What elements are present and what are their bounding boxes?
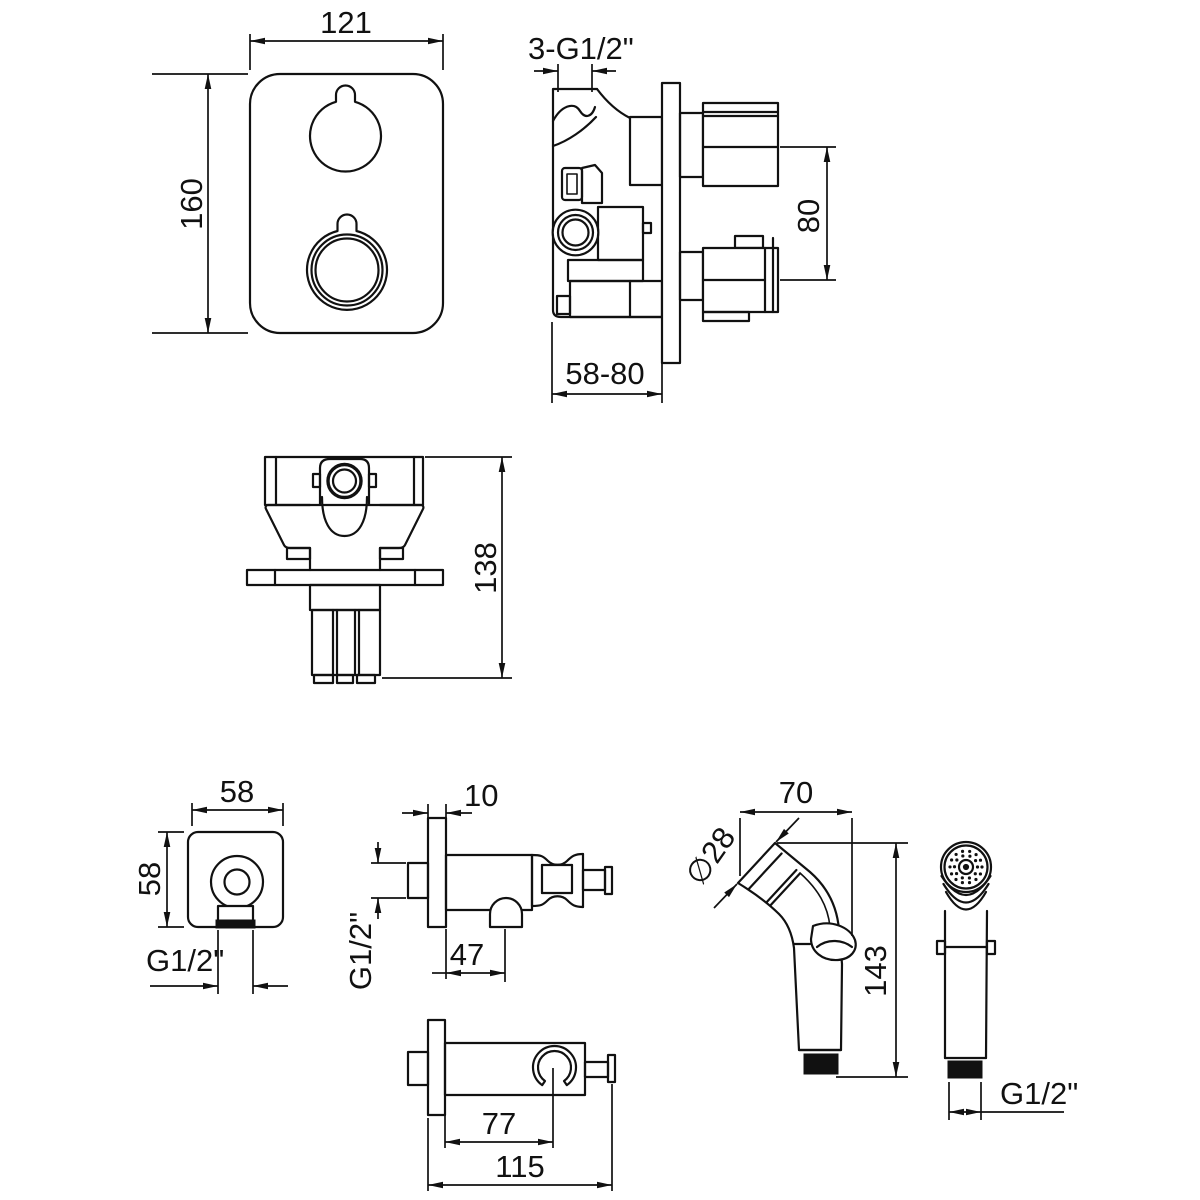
sprayer-thread-front — [948, 1061, 982, 1078]
thermostat-knob — [310, 86, 381, 172]
inlet-stub — [408, 863, 428, 898]
dim-front-plate-width: 121 — [320, 5, 372, 40]
dim-valve-top-height-group: 138 — [382, 457, 512, 678]
dim-sprayer-height: 143 — [858, 945, 893, 997]
dim-valve-top-height: 138 — [468, 542, 503, 594]
cartridge-cap — [553, 210, 599, 256]
dim-sprayer-thread-group: G1/2" — [949, 1076, 1078, 1120]
dim-outlet-front-height-group: 58 — [132, 832, 184, 927]
sprayer-body — [738, 843, 856, 1074]
dim-sprayer-head-diameter: ∅28 — [678, 821, 742, 891]
dim-sprayer-thread: G1/2" — [1000, 1076, 1078, 1111]
dim-front-plate-height-group: 160 — [152, 74, 248, 333]
dim-valve-knob-spacing: 80 — [791, 199, 826, 233]
right-wing — [380, 505, 423, 548]
view-wall-outlet-side: 10 G1/2" 47 — [343, 778, 612, 990]
dim-outlet-offset-group: 47 — [432, 929, 505, 982]
left-wing — [266, 505, 310, 548]
outlet-nozzle — [218, 906, 253, 921]
view-sprayer-side: 70 ∅28 143 — [678, 775, 908, 1077]
dim-outlet-side-thread: G1/2" — [343, 912, 378, 990]
wall-plate-edge — [662, 83, 680, 363]
dim-outlet-front-thread: G1/2" — [146, 943, 224, 978]
volume-knob — [307, 215, 387, 310]
outlet-wall-plate — [428, 818, 446, 927]
holder-pin — [583, 870, 605, 890]
outlet-holder-body — [408, 818, 612, 927]
sprayer-thread-side — [804, 1054, 838, 1074]
view-valve-side: 3-G1/2" 80 58-80 — [528, 31, 836, 403]
view-valve-top: 138 — [247, 457, 512, 683]
shower-mixer-dimension-drawing: 121 160 — [0, 0, 1200, 1200]
dim-outlet-plate-thickness-group: 10 — [402, 778, 498, 822]
dim-holder-offset: 77 — [482, 1106, 516, 1141]
dim-outlet-front-width: 58 — [220, 774, 254, 809]
plate-outline — [250, 74, 443, 333]
dim-valve-depth-range: 58-80 — [565, 356, 644, 391]
outlet-spout — [490, 898, 522, 927]
dim-valve-thread: 3-G1/2" — [528, 31, 634, 66]
dim-valve-knob-spacing-group: 80 — [780, 147, 836, 280]
dim-outlet-front-height: 58 — [132, 862, 167, 896]
view-front-plate: 121 160 — [152, 5, 443, 333]
view-wall-outlet-bottom: 77 115 — [408, 1020, 615, 1191]
valve-body — [553, 83, 778, 363]
dim-outlet-offset: 47 — [450, 937, 484, 972]
dim-sprayer-head-width: 70 — [779, 775, 813, 810]
sprayer-front-body — [937, 842, 995, 1078]
dim-outlet-plate-thickness: 10 — [464, 778, 498, 813]
technical-drawing-sheet: 121 160 — [0, 0, 1200, 1200]
dim-overall-length-group: 115 — [428, 1084, 612, 1191]
valve-top-body — [247, 457, 443, 683]
dim-valve-thread-group: 3-G1/2" — [528, 31, 634, 92]
plate-edge-top-view — [247, 570, 443, 585]
view-wall-outlet-front: 58 58 G1/2" — [132, 774, 288, 994]
view-sprayer-front: G1/2" — [937, 842, 1078, 1120]
dim-valve-depth-range-group: 58-80 — [552, 322, 662, 403]
dim-front-plate-width-group: 121 — [250, 5, 443, 70]
dim-outlet-front-width-group: 58 — [192, 774, 283, 826]
dim-front-plate-height: 160 — [174, 178, 209, 230]
holder-ring — [533, 1046, 576, 1085]
outlet-holder-bottom-body — [408, 1020, 615, 1115]
dim-outlet-front-thread-group: G1/2" — [146, 930, 288, 994]
dim-overall-length: 115 — [495, 1149, 544, 1184]
dim-outlet-side-thread-group: G1/2" — [343, 842, 406, 990]
